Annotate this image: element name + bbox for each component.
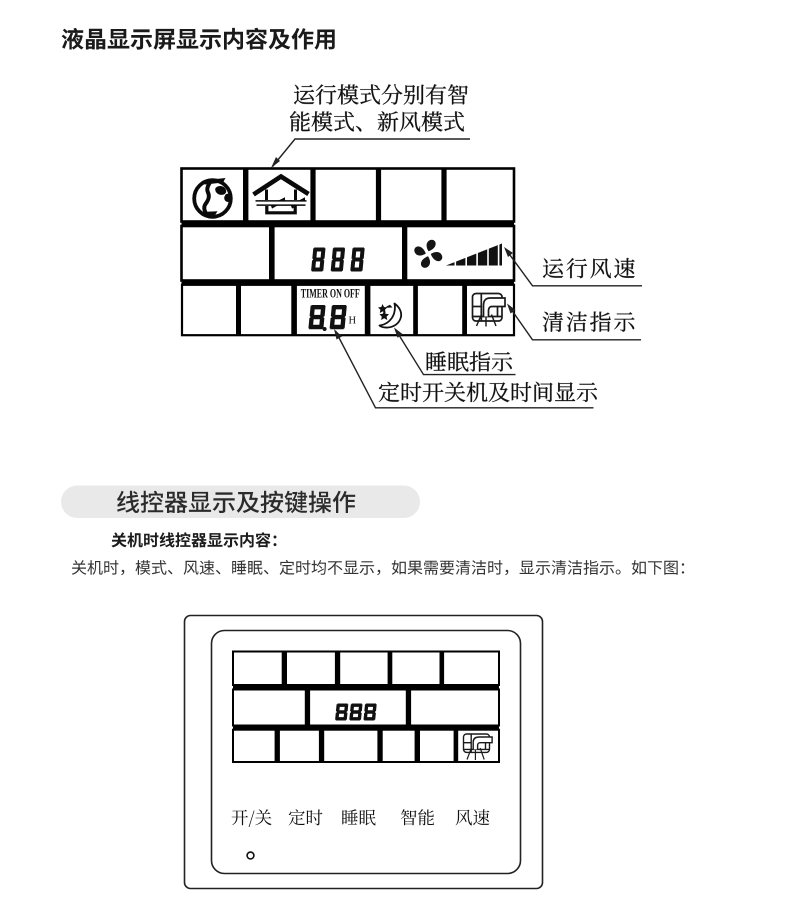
svg-text:TIMER ON OFF: TIMER ON OFF bbox=[301, 286, 360, 300]
svg-text:H: H bbox=[349, 316, 357, 327]
